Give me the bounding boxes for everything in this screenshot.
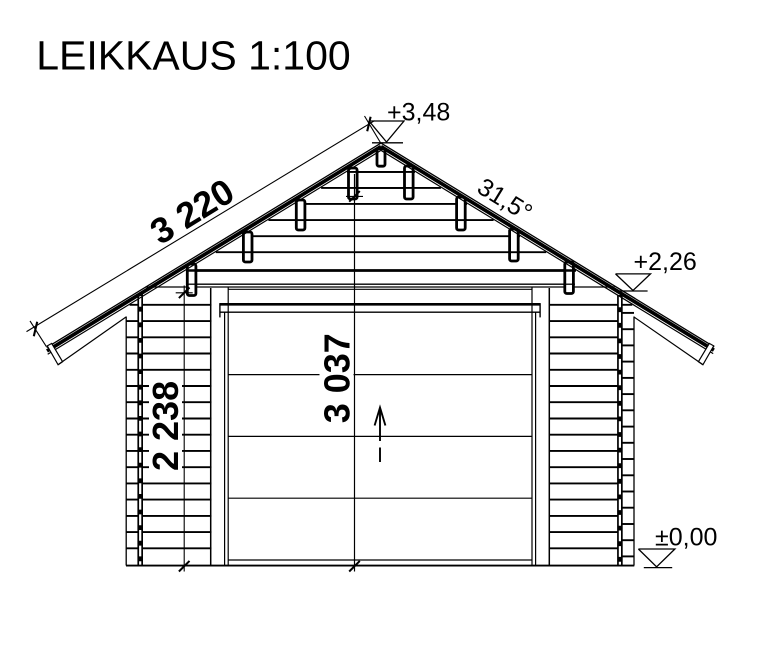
svg-text:+2,26: +2,26 bbox=[634, 248, 697, 276]
svg-text:2 238: 2 238 bbox=[145, 381, 186, 471]
svg-text:LEIKKAUS 1:100: LEIKKAUS 1:100 bbox=[36, 33, 351, 79]
svg-text:±0,00: ±0,00 bbox=[655, 523, 717, 551]
svg-text:+3,48: +3,48 bbox=[387, 98, 450, 126]
svg-text:3 037: 3 037 bbox=[317, 333, 358, 423]
